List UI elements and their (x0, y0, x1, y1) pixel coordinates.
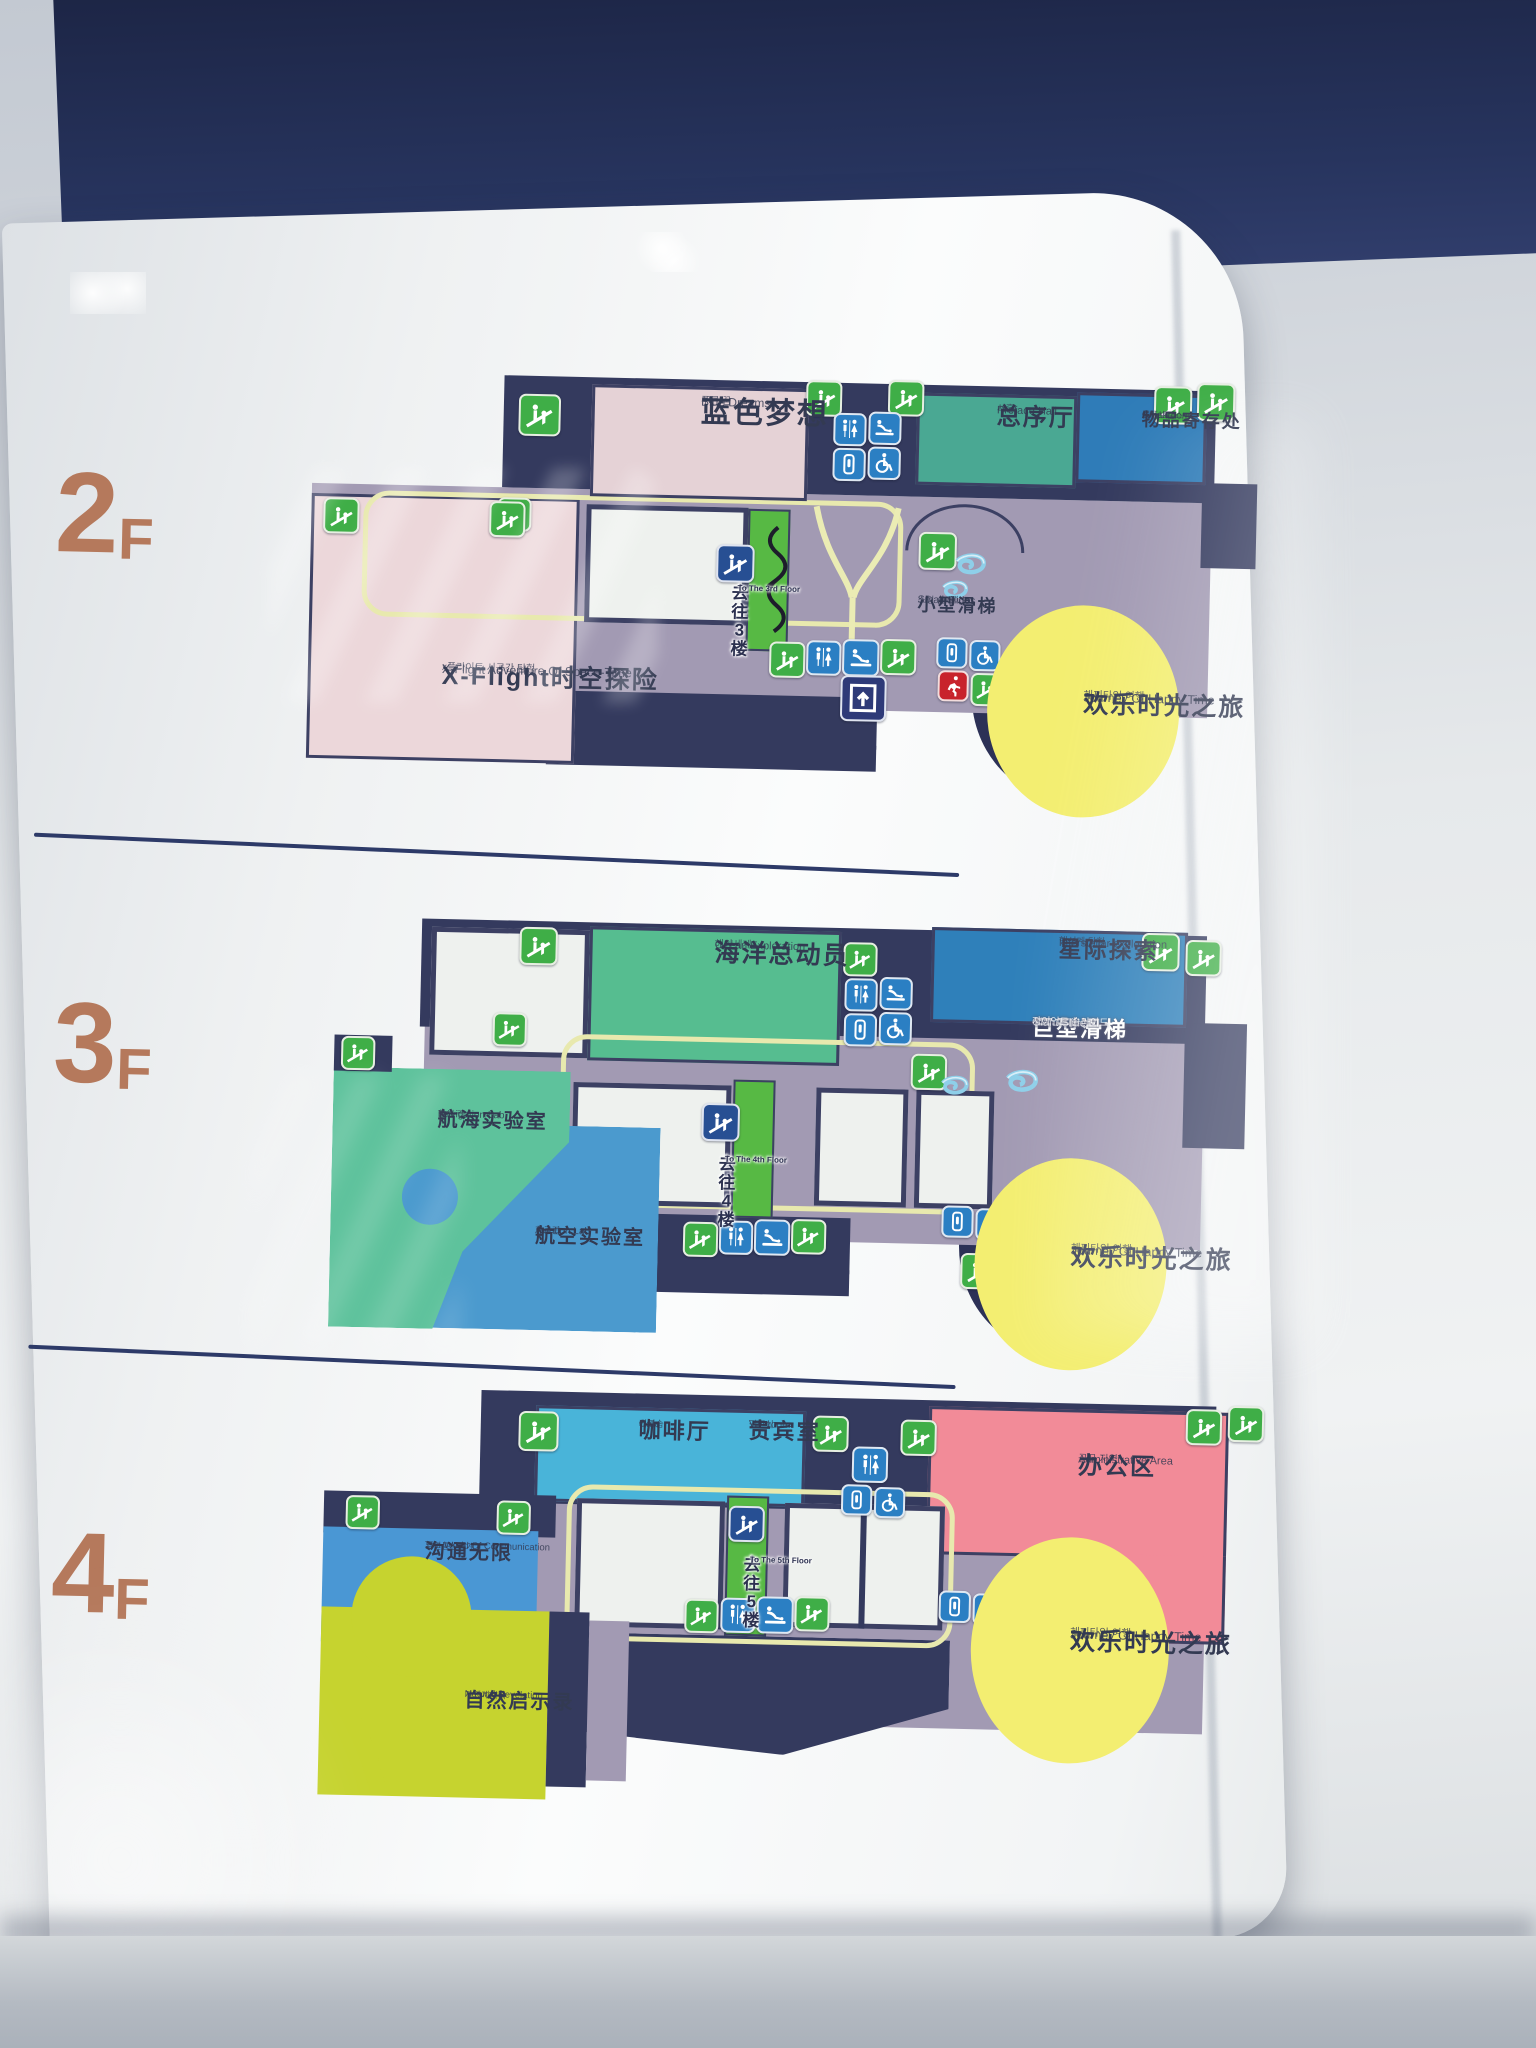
label-ko: 커피숍 (639, 1419, 664, 1430)
escalator-icon (519, 927, 558, 966)
directory-content: 2 F 3 F 4 F (0, 0, 1536, 2048)
floor-map-3f: 海洋总动员 Ocean Exploration 해양세계 星际探索 Inters… (232, 906, 1252, 1379)
baby-care-icon (868, 411, 902, 445)
floor-label-4f: 4 F (50, 1525, 151, 1624)
escalator-icon (341, 1036, 376, 1071)
baby-care-icon (842, 639, 880, 677)
escalator-icon (345, 1495, 380, 1530)
baby-care-icon (754, 1219, 791, 1256)
escalator-icon (794, 1596, 830, 1632)
open-room (814, 1087, 909, 1207)
label-ko: 자이언트 슬라이드 (1032, 1016, 1109, 1029)
label-ko: 소형 슬라이드 (917, 595, 969, 606)
escalator-icon (323, 497, 360, 534)
escalator-icon (518, 1411, 559, 1452)
escalator-sign-icon (728, 1506, 765, 1543)
corridor (586, 1620, 630, 1781)
floor-map-2f: 蓝色梦想 Blue Dreams 푸른 꿈 总序厅 Preface Hall 서… (244, 362, 1265, 875)
floor-number: 4 (50, 1525, 114, 1623)
toilet-icon (852, 1446, 889, 1483)
label-en: To The 5th Floor (744, 1556, 818, 1566)
wall (634, 1265, 850, 1296)
label-en: To The 4th Floor (719, 1155, 793, 1165)
emergency-exit-icon (937, 670, 969, 702)
label-ko: 귀빈실 (749, 1419, 774, 1430)
escalator-icon (791, 1219, 827, 1255)
wall (1182, 1023, 1247, 1149)
squat-toilet-icon (936, 637, 968, 669)
escalator-sign-icon (716, 544, 755, 583)
escalator-icon (900, 1419, 937, 1456)
label-ko: 해피타임 여행 (1070, 1628, 1131, 1641)
label-ko: 항공랩 (535, 1225, 560, 1236)
label-ko: 근무 지역 (1078, 1454, 1118, 1466)
escalator-icon (518, 394, 561, 437)
label-ko: 행성계 탐험 (1059, 937, 1106, 949)
wall (1200, 483, 1257, 569)
baby-care-icon (756, 1596, 794, 1634)
toilet-icon (806, 640, 842, 676)
label-ko: 물품보관소 (1142, 410, 1184, 421)
label-zh: 去往5楼 (742, 1556, 762, 1631)
toilet-icon (844, 978, 878, 1012)
wheelchair-icon (874, 1487, 906, 1519)
escalator-icon (1228, 1406, 1265, 1443)
floor-map-4f: 咖啡厅 Cafe 커피숍 贵宾室 VIP room 귀빈실 办公区 Admini… (220, 1376, 1277, 1930)
label-en: To The 3rd Floor (732, 584, 806, 594)
label-ko: x플라이트 시공간 탐험 (442, 662, 536, 675)
label-ko: 항해 랩 (438, 1109, 466, 1120)
escalator-icon (684, 1599, 719, 1634)
label-ko: 푸른 꿈 (701, 396, 732, 408)
squat-toilet-icon (843, 1013, 877, 1047)
floor-suffix: F (114, 1574, 151, 1624)
squat-toilet-icon (941, 1205, 974, 1238)
decorative-squiggle (754, 523, 799, 636)
escalator-icon (769, 641, 806, 678)
squat-toilet-icon (832, 448, 866, 482)
escalator-strip (731, 1080, 776, 1219)
escalator-icon (1185, 940, 1222, 977)
squat-toilet-icon (938, 1590, 971, 1623)
escalator-icon (880, 639, 917, 676)
label-zh: 去往4楼 (717, 1155, 737, 1230)
lightbox-bottom-frame (0, 1936, 1536, 2048)
escalator-icon (489, 501, 526, 538)
escalator-icon (1186, 1409, 1223, 1446)
escalator-icon (492, 1012, 527, 1047)
squat-toilet-icon (841, 1484, 873, 1516)
escalator-icon (683, 1221, 719, 1257)
floor-label-3f: 3 F (52, 995, 153, 1094)
floor-number: 2 (54, 465, 118, 563)
floor-label-2f: 2 F (54, 465, 155, 564)
label-ko: 해피타임 여행 (1071, 1243, 1132, 1256)
label-zh: 去往3楼 (730, 584, 750, 659)
label-ko: 해피타임 여행 (1083, 690, 1144, 703)
spiral-slide-icon (1000, 1066, 1043, 1109)
spiral-slide-icon (936, 1072, 973, 1109)
photo-of-floor-directory: 2 F 3 F 4 F (0, 0, 1536, 2048)
elevator-icon (840, 675, 887, 722)
label-ko: 자연계시록 (465, 1690, 507, 1701)
floor-number: 3 (52, 995, 116, 1093)
label-ko: 해양세계 (715, 939, 752, 951)
wheelchair-icon (867, 446, 901, 480)
escalator-sign-icon (701, 1103, 740, 1142)
floor-suffix: F (116, 1044, 153, 1094)
floor-suffix: F (118, 514, 155, 564)
label-ko: 서홀 (997, 404, 1015, 415)
escalator-icon (496, 1500, 531, 1535)
label-ko: 무한통신세계 (425, 1541, 475, 1552)
baby-care-icon (879, 977, 913, 1011)
toilet-icon (833, 413, 867, 447)
wheelchair-icon (879, 1012, 913, 1046)
